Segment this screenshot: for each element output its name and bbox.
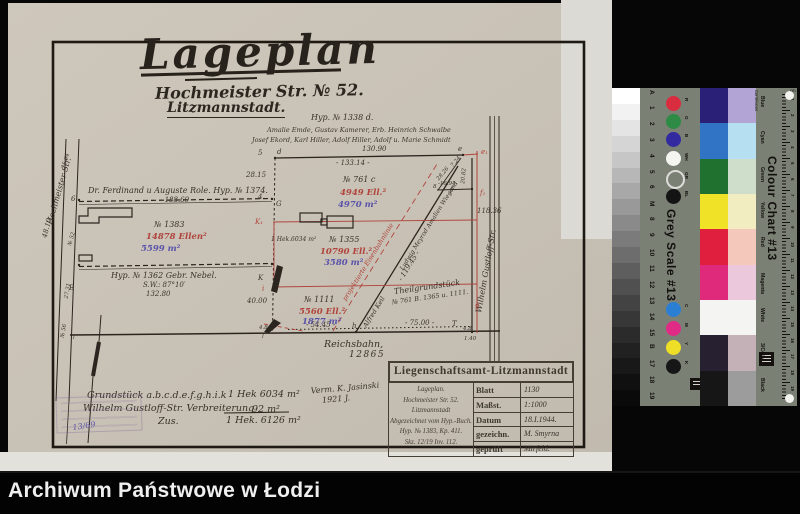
colour-chart-label-strip: Continuous Colour Chart #13 BlueCyanGree… [756,88,782,406]
grey-step-12 [612,279,640,295]
circle-gr-label: GR [684,172,689,179]
colour-chart-title: Colour Chart #13 [765,156,779,261]
ruler-number: 18 [790,370,795,375]
grey-step-17 [612,358,640,374]
registry-table: Liegenschaftsamt-Litzmannstadt Lageplan.… [388,361,574,457]
registry-description-line: Hyp. № 1383, Kp. 411. [390,427,472,438]
grey-step-label: 1 [648,106,655,110]
grey-step-14 [612,311,640,327]
grey-step-label: 6 [648,185,655,189]
patch-yellow-solid [700,194,728,229]
color-calibration-chart: Grey Scale #13 A123456M89101112131415B17… [612,88,797,406]
grey-scale-gradient [612,88,640,406]
archival-stamp [55,395,142,434]
grey-step-10 [612,247,640,263]
patch-label-black: Black [759,378,765,392]
grey-step-label: 11 [648,265,655,272]
grey-step-label: 15 [648,329,655,336]
grey-step-19 [612,390,640,406]
patch-label-3/color: 3/Color [759,343,765,361]
patch-blue-light [728,88,756,123]
grey-step-11 [612,263,640,279]
ruler-number: 13 [790,290,795,295]
ruler-number: 5 [790,162,795,165]
grey-step-label: 17 [648,360,655,367]
circle-wh-swatch-icon [666,151,681,166]
registry-row-label: geprüft [474,442,521,456]
circle-m-swatch-icon [666,321,681,336]
circle-g-swatch-icon [666,114,681,129]
registry-description-line: Lageplan. [390,385,472,396]
patch-magenta-light [728,265,756,300]
grey-scale-panel: Grey Scale #13 A123456M89101112131415B17… [640,88,700,406]
patch-cyan-solid [700,123,728,158]
grey-step-5 [612,168,640,184]
grey-step-label: 19 [648,392,655,399]
circle-y-label: Y [684,342,689,345]
registry-row-value: M. Smyrna [521,427,573,442]
ruler-number: 4 [790,146,795,149]
punch-hole-icon [785,394,794,403]
registry-row-label: Maßst. [474,398,521,413]
registry-description-line: Hochmeister Str. 52. [390,396,472,407]
plan-title: Lageplan [139,28,380,76]
building-outlines [79,208,353,261]
grey-step-label: 18 [648,376,655,383]
ruler-number: 19 [790,386,795,391]
ruler-number: 17 [790,354,795,359]
grey-step-label: 9 [648,233,655,237]
patch-white-solid [700,300,728,335]
circle-c-label: C [684,304,689,307]
patch-label-magenta: Magenta [759,273,765,294]
light-color-column [728,88,756,406]
archive-footer-bar: Archiwum Państwowe w Łodzi [0,471,800,514]
grey-step-label: 14 [648,313,655,320]
patch-green-light [728,159,756,194]
patch-red-light [728,229,756,264]
plan-subtitle-city: Litzmannstadt. [167,100,285,118]
grey-step-15 [612,327,640,343]
ruler-number: 14 [790,306,795,311]
circle-c-swatch-icon [666,302,681,317]
patch-cyan-light [728,123,756,158]
circle-k-label: K [684,361,689,364]
survey-points [78,154,473,333]
ruler-number: 7 [790,194,795,197]
archive-name: Archiwum Państwowe w Łodzi [8,479,320,503]
grey-step-4 [612,152,640,168]
ruler-number: 2 [790,114,795,117]
grey-step-label: 4 [648,154,655,158]
circle-gr-swatch-icon [666,170,685,189]
grey-step-label: A [648,90,655,95]
registry-description-line: Skz. 12/19 Inv. 112. [390,438,472,449]
grey-step-1 [612,104,640,120]
patch-label-cyan: Cyan [759,131,765,144]
ruler-number: 3 [790,130,795,133]
registry-description-line: Litzmannstadt [390,406,472,417]
grey-step-label: 2 [648,122,655,126]
circle-y-swatch-icon [666,340,681,355]
patch-red-solid [700,229,728,264]
registry-table-body: Lageplan.Hochmeister Str. 52.Litzmannsta… [388,383,574,457]
patch-green-solid [700,159,728,194]
ruler-number: 8 [790,210,795,213]
patch-label-green: Green [759,167,765,182]
circle-b-swatch-icon [666,132,681,147]
grey-step-label: 3 [648,138,655,142]
grey-step-label: M [648,201,655,206]
ruler-number: 10 [790,242,795,247]
grey-step-label: 8 [648,217,655,221]
scanned-archive-page: Lageplan Hochmeister Str. № 52. Litzmann… [0,0,800,514]
grey-step-2 [612,120,640,136]
registry-row-value: 18.I.1944. [521,413,573,428]
patch-label-red: Red [759,237,765,247]
grey-step-label: 12 [648,281,655,288]
registry-description-line: Abgezeichnet vom Hyp.-Buch. [390,417,472,428]
patch-3/color-light [728,335,756,370]
patch-label-yellow: Yellow [759,202,765,218]
patch-white-light [728,300,756,335]
patch-yellow-light [728,194,756,229]
punch-hole-icon [785,91,794,100]
grey-step-label: B [648,344,655,349]
registry-row-label: Datum [474,413,521,428]
ruler-strip: cm 12345678910111213141516171819 [782,88,797,406]
grey-step-3 [612,136,640,152]
patch-black-solid [700,371,728,406]
grey-step-M [612,199,640,215]
grey-step-B [612,343,640,359]
circle-bl-label: BL [684,191,689,197]
patch-label-blue: Blue [759,96,765,107]
patch-magenta-solid [700,265,728,300]
circle-m-label: M [684,323,689,327]
ruler-number: 6 [790,178,795,181]
grey-scale-title: Grey Scale #13 [664,209,678,301]
registry-table-header: Liegenschaftsamt-Litzmannstadt [388,361,574,383]
circle-k-swatch-icon [666,359,681,374]
patch-label-white: White [759,308,765,322]
ruler-number: 9 [790,226,795,229]
registry-row-label: Blatt [474,383,521,398]
grey-step-8 [612,215,640,231]
grey-step-9 [612,231,640,247]
circle-r-swatch-icon [666,96,681,111]
grey-step-6 [612,183,640,199]
registry-row-value: Mirfeld. [521,442,573,456]
circle-b-label: B [684,134,689,137]
registry-row-label: gezeichn. [474,427,521,442]
grey-step-13 [612,295,640,311]
ruler-number: 11 [790,258,795,263]
ruler-number: 16 [790,338,795,343]
grey-step-label: 13 [648,297,655,304]
patch-black-light [728,371,756,406]
circle-r-label: R [684,98,689,101]
circle-g-label: G [684,116,689,120]
grey-step-label: 5 [648,170,655,174]
registry-table-description: Lageplan.Hochmeister Str. 52.Litzmannsta… [389,383,474,456]
saturated-color-column [700,88,728,406]
grey-step-label: 10 [648,249,655,256]
registry-row-value: 1130 [521,383,573,398]
ruler-number: 12 [790,274,795,279]
circle-wh-label: WH [684,153,689,161]
grey-step-A [612,88,640,104]
grey-step-18 [612,374,640,390]
patch-3/color-solid [700,335,728,370]
ruler-number: 15 [790,322,795,327]
patch-blue-solid [700,88,728,123]
registry-row-value: 1:1000 [521,398,573,413]
circle-bl-swatch-icon [666,189,681,204]
